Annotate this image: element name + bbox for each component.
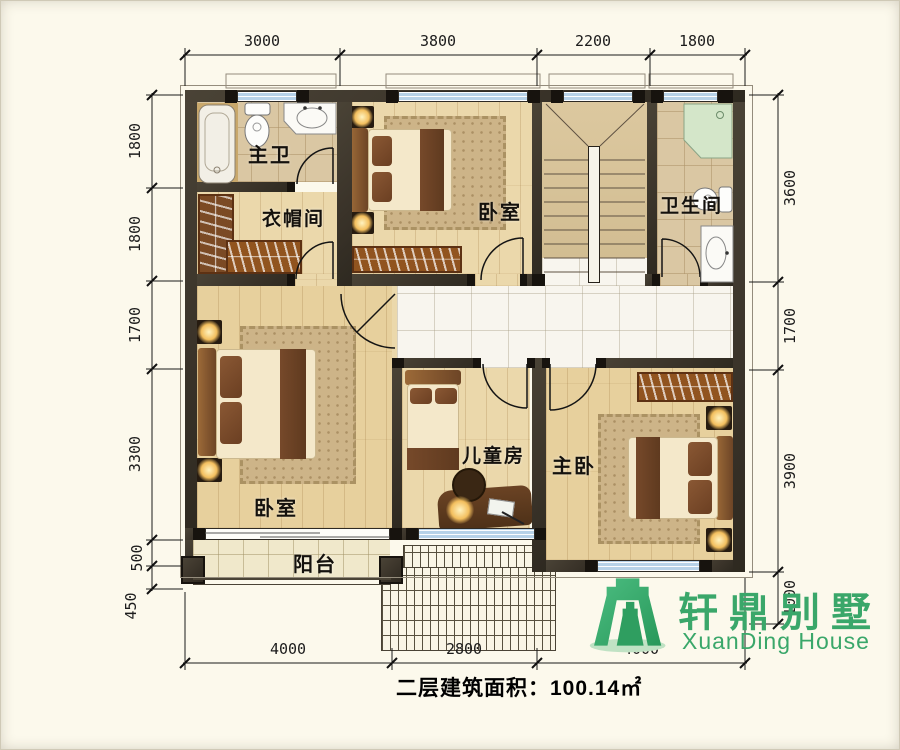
window-balcony-door	[205, 528, 390, 540]
jamb-block	[406, 528, 418, 540]
room-label-master-bath: 主卫	[248, 146, 292, 166]
jamb-block	[386, 90, 398, 103]
floor-bedroomtop-door-patch	[475, 274, 520, 286]
jamb-block	[287, 182, 295, 192]
bathtub-frame	[196, 103, 238, 185]
paper	[487, 498, 515, 517]
lamp-icon	[351, 212, 373, 234]
jamb-block	[392, 358, 404, 368]
jamb-block	[700, 274, 708, 286]
jamb-block	[467, 274, 475, 286]
balcony-railing	[193, 578, 391, 585]
pillow	[688, 442, 712, 476]
wall-spine	[352, 274, 475, 286]
dim-right-2: 1700	[781, 291, 799, 361]
pillow	[220, 402, 242, 444]
window-master-bath	[237, 91, 297, 102]
bed-runner	[420, 129, 444, 211]
pillow	[410, 388, 432, 404]
bed-runner	[280, 349, 306, 459]
room-label-bedroom-left: 卧室	[254, 499, 298, 519]
area-text: 二层建筑面积：100.14㎡	[396, 672, 642, 702]
kids-bed-blanket	[407, 448, 459, 470]
wardrobe	[637, 372, 733, 402]
jamb-block	[473, 358, 481, 368]
jamb-block	[718, 90, 733, 103]
jamb-block	[532, 274, 545, 286]
lamp-icon	[707, 528, 731, 552]
lamp-icon	[707, 406, 731, 430]
dim-top-1: 3000	[227, 32, 297, 50]
logo-name-en: XuanDing House	[682, 628, 870, 655]
dim-right-3: 3900	[781, 436, 799, 506]
wall-vert-stairs-bathroom	[647, 102, 657, 281]
jamb-block	[520, 274, 527, 286]
pillow	[372, 172, 392, 202]
floor-stairs-landing	[542, 258, 647, 286]
room-label-bedroom-top: 卧室	[478, 203, 522, 223]
wall-masterbath-cloak	[197, 182, 295, 192]
wall-hall-bottom	[392, 358, 481, 368]
lamp-icon	[446, 496, 474, 524]
dim-top-3: 2200	[558, 32, 628, 50]
dim-left-4: 3300	[126, 419, 144, 489]
dim-left-6: 450	[122, 571, 140, 641]
wall-vert-bedroom-stairs	[532, 102, 542, 281]
jamb-block	[542, 358, 550, 368]
pillow	[688, 480, 712, 514]
wall-vert-bath-bedroom	[337, 102, 352, 286]
dim-bottom-2: 2800	[429, 640, 499, 658]
kids-bed-headboard	[405, 370, 461, 385]
lamp-icon	[197, 458, 221, 482]
bed-runner	[636, 437, 660, 519]
xuanding-logo-icon	[589, 568, 673, 656]
jamb-block	[652, 274, 660, 286]
window-stairs	[563, 91, 633, 102]
pillow	[372, 136, 392, 166]
jamb-block	[535, 528, 546, 540]
wall-spine	[197, 274, 295, 286]
porch-roof-hatch	[403, 545, 540, 568]
jamb-block	[225, 90, 237, 103]
pillow	[220, 356, 242, 398]
room-label-bathroom: 卫生间	[660, 197, 723, 216]
room-label-cloakroom: 衣帽间	[262, 210, 325, 229]
window-bathroom	[663, 91, 718, 102]
bed-headboard	[716, 436, 733, 520]
wall-exterior-right	[733, 102, 745, 572]
jamb-block	[633, 90, 645, 103]
floor-bathroom	[657, 102, 733, 274]
room-label-kids-room: 儿童房	[462, 447, 525, 466]
jamb-block	[700, 560, 712, 572]
floorplan-canvas: 3000 3800 2200 1800 1800 1800 1700 3300 …	[0, 0, 900, 750]
jamb-block	[551, 90, 563, 103]
wall-exterior-left	[185, 102, 197, 540]
dim-bottom-1: 4000	[253, 640, 323, 658]
wall-bedroom-kids	[392, 368, 402, 528]
jamb-block	[287, 274, 295, 286]
wardrobe	[352, 246, 462, 273]
jamb-block	[193, 528, 205, 540]
window-kids-room	[418, 528, 535, 540]
porch-roof-hatch	[381, 567, 556, 651]
cloakroom-wardrobe	[226, 240, 302, 274]
dim-left-1: 1800	[126, 106, 144, 176]
wall-hall-bottom	[596, 358, 733, 368]
dim-left-3: 1700	[126, 290, 144, 360]
room-label-balcony: 阳台	[293, 555, 337, 575]
pillow	[435, 388, 457, 404]
lamp-icon	[351, 106, 373, 128]
jamb-block	[527, 358, 535, 368]
jamb-block	[528, 90, 540, 103]
jamb-block	[390, 528, 402, 540]
jamb-block	[297, 90, 309, 103]
bed-headboard	[198, 348, 216, 456]
jamb-block	[596, 358, 606, 368]
floor-balcony	[193, 540, 390, 580]
floor-bath-door-patch	[660, 274, 700, 286]
bed-headboard	[350, 128, 368, 212]
floor-hallway	[397, 286, 733, 368]
dim-left-2: 1800	[126, 199, 144, 269]
floor-stairs	[542, 102, 647, 258]
jamb-block	[651, 90, 663, 103]
room-label-master-bedroom: 主卧	[552, 457, 596, 477]
dim-top-2: 3800	[403, 32, 473, 50]
lamp-icon	[197, 320, 221, 344]
window-bedroom-top	[398, 91, 528, 102]
dim-right-1: 3600	[781, 153, 799, 223]
dim-top-4: 1800	[662, 32, 732, 50]
